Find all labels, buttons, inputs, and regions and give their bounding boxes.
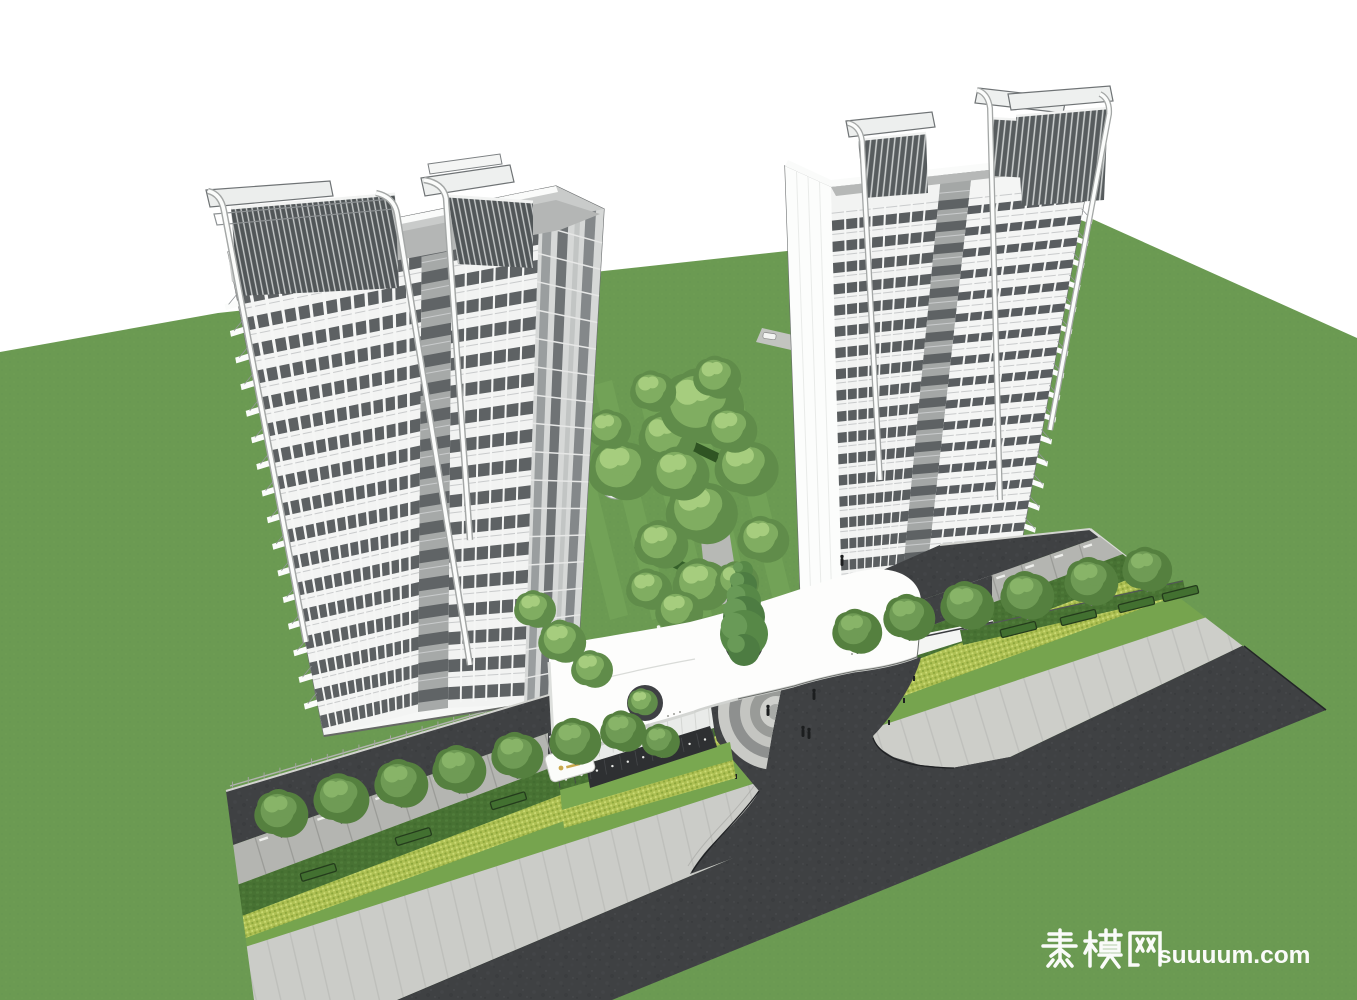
svg-text:suuuum.com: suuuum.com bbox=[1158, 942, 1310, 969]
